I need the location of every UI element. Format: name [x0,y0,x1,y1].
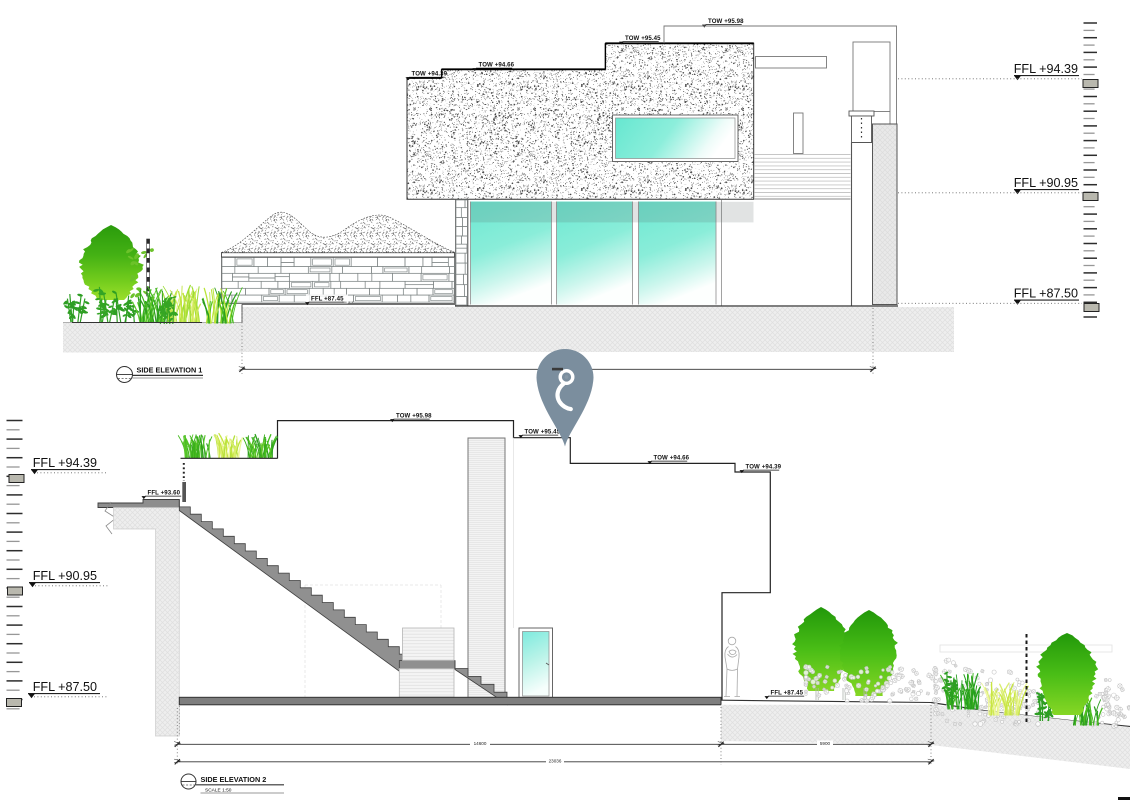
svg-text:FFL +94.39: FFL +94.39 [1014,62,1078,76]
svg-text:FFL +87.45: FFL +87.45 [771,690,804,697]
svg-text:FFL +93.60: FFL +93.60 [148,490,181,497]
svg-text:FFL +90.95: FFL +90.95 [1014,176,1078,190]
svg-text:FFL +87.50: FFL +87.50 [33,680,97,694]
svg-text:FFL +94.39: FFL +94.39 [33,456,97,470]
svg-text:FFL +90.95: FFL +90.95 [33,569,97,583]
svg-text:14600: 14600 [474,741,487,746]
svg-text:TOW +94.39: TOW +94.39 [412,71,448,78]
svg-text:5900: 5900 [820,741,831,746]
svg-text:TOW +95.98: TOW +95.98 [396,413,432,420]
svg-text:TOW +94.66: TOW +94.66 [654,455,690,462]
svg-text:SCALE 1:50: SCALE 1:50 [205,788,232,794]
svg-text:23036: 23036 [549,759,562,764]
svg-text:FFL +87.50: FFL +87.50 [1014,287,1078,301]
svg-text:FFL +87.45: FFL +87.45 [311,296,344,303]
svg-text:TOW +94.66: TOW +94.66 [479,62,515,69]
svg-text:SIDE ELEVATION 2: SIDE ELEVATION 2 [201,775,267,784]
svg-text:TOW +95.98: TOW +95.98 [708,18,744,25]
svg-text:TOW +94.39: TOW +94.39 [746,464,782,471]
svg-text:TOW +95.45: TOW +95.45 [625,35,661,42]
svg-text:SIDE ELEVATION 1: SIDE ELEVATION 1 [137,366,203,375]
svg-text:TOW +95.45: TOW +95.45 [525,429,561,436]
